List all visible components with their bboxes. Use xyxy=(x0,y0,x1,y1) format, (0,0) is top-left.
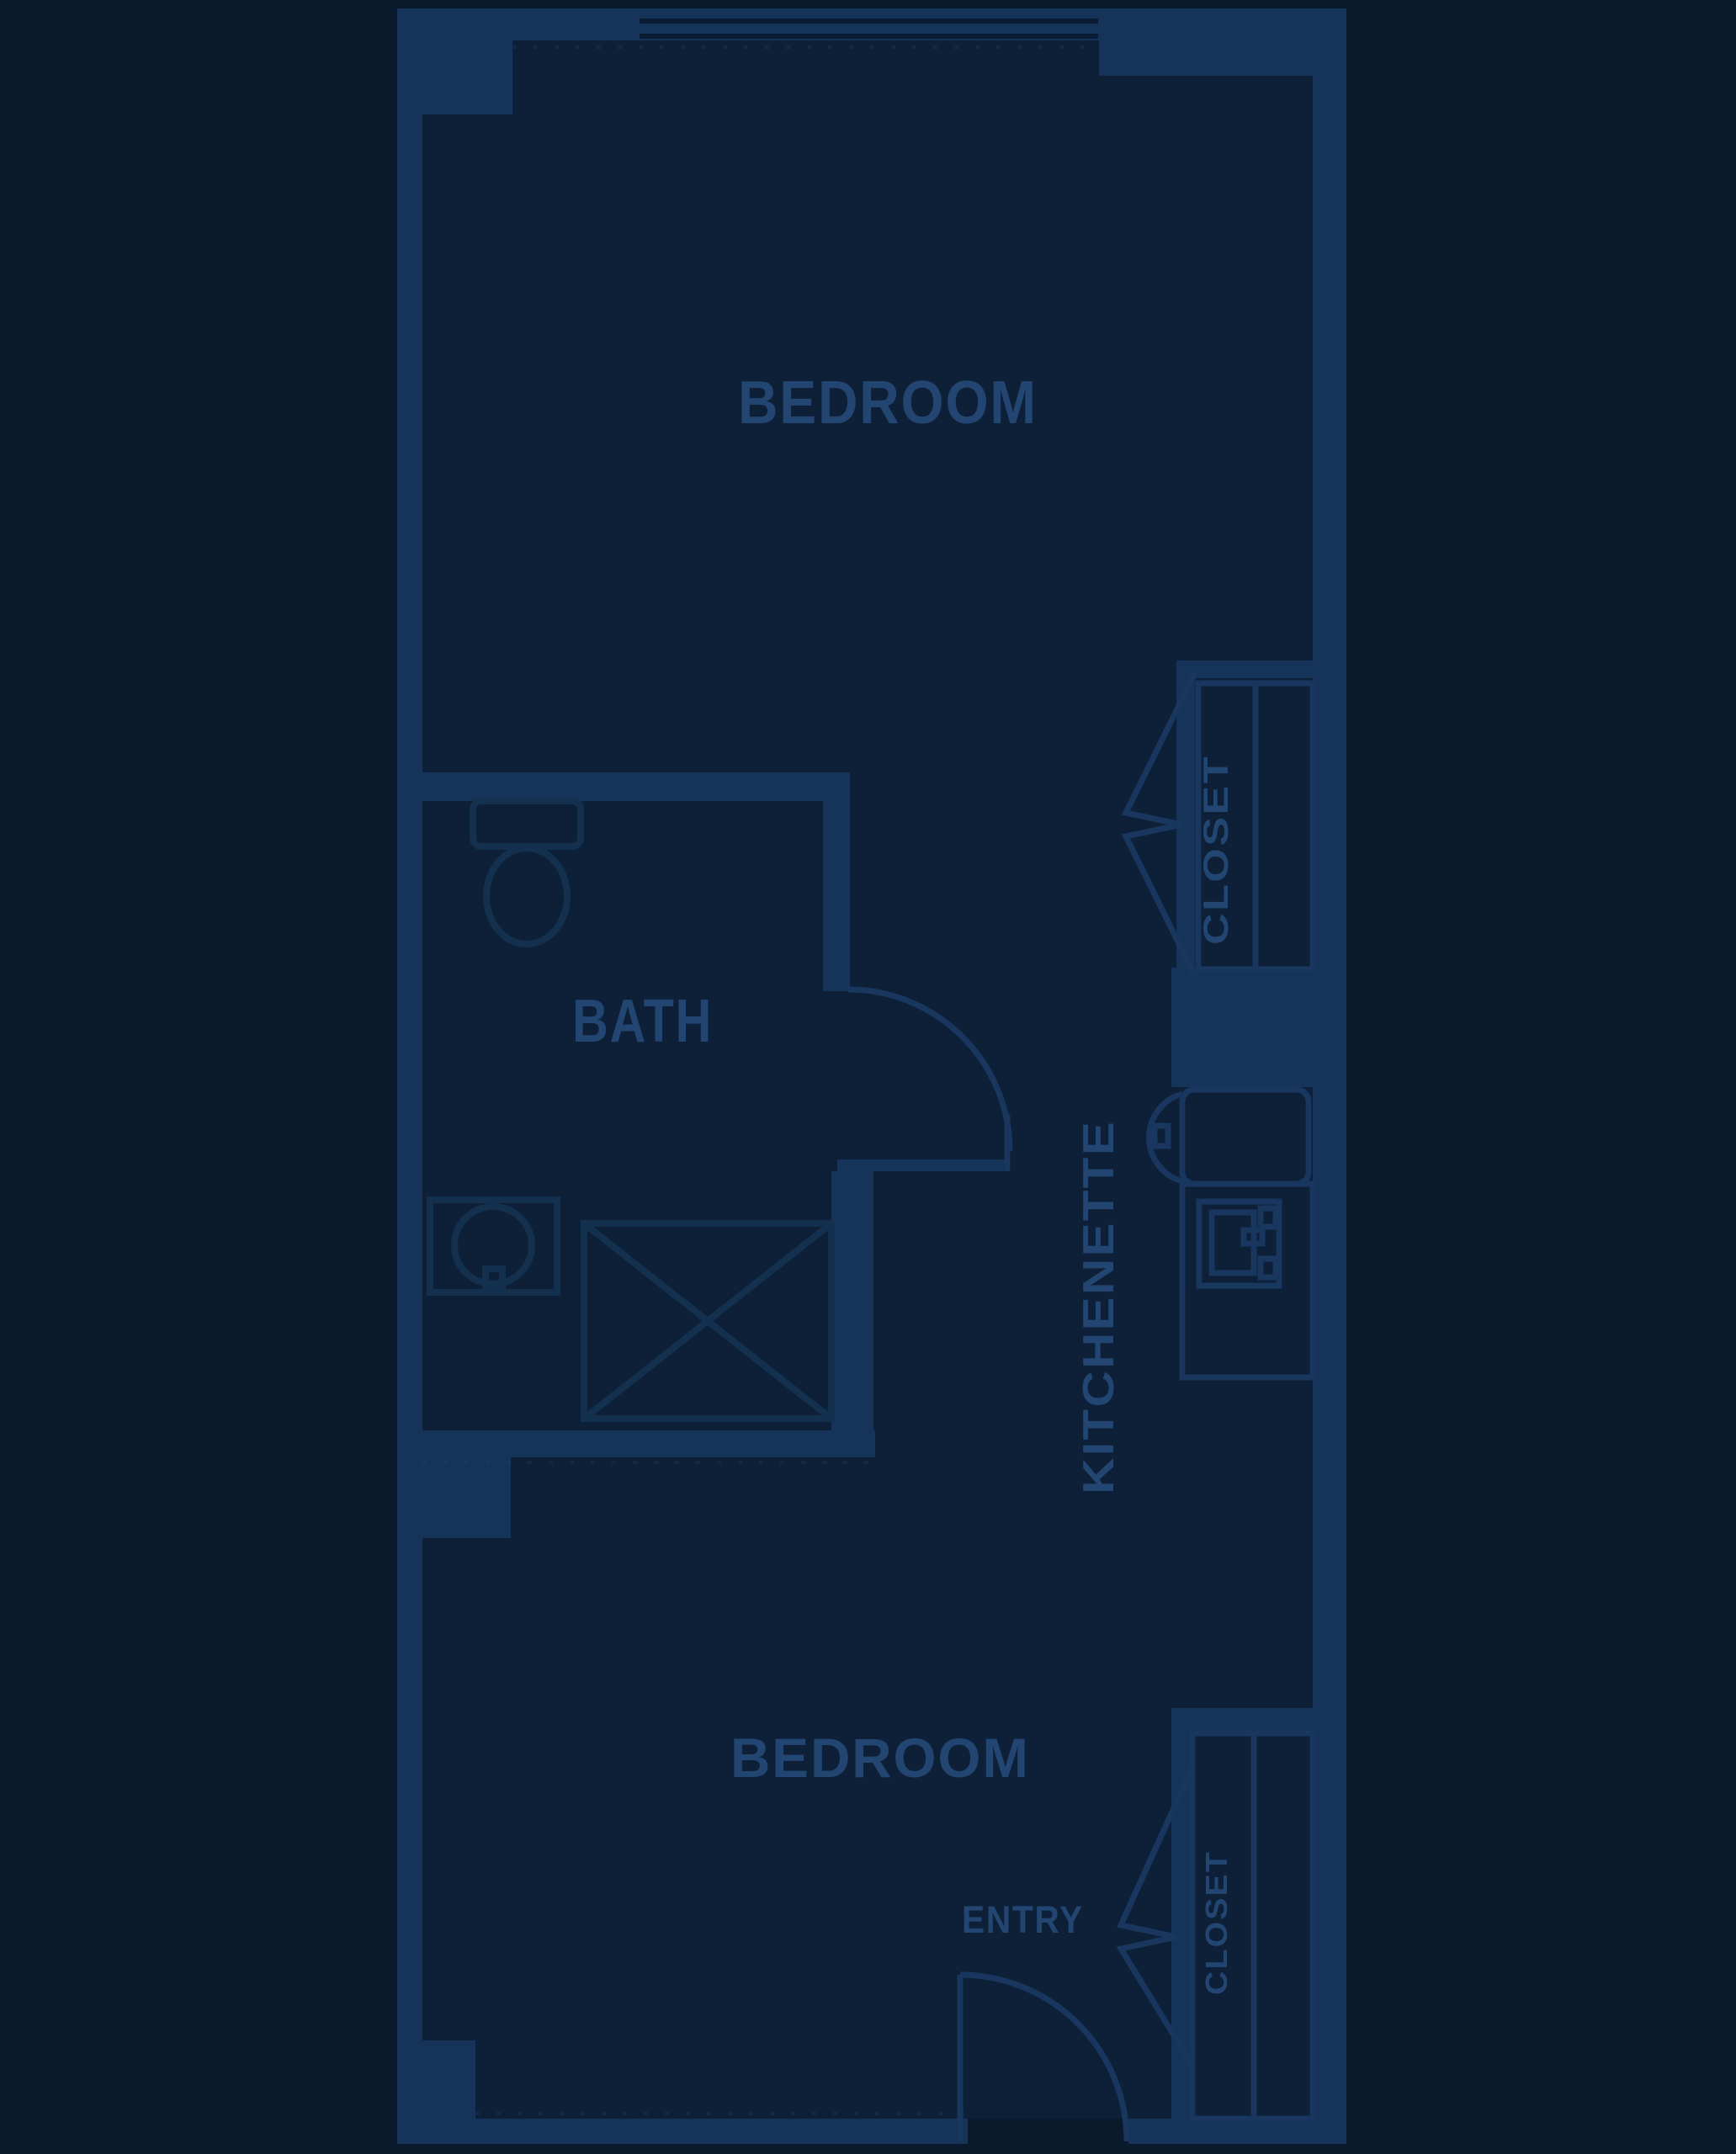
label-kitchenette: KITCHENETTE xyxy=(1075,1120,1123,1494)
label-entry: ENTRY xyxy=(962,1898,1084,1941)
wall-corridor-west xyxy=(831,1171,873,1430)
wall-corner-top-right xyxy=(1099,8,1346,76)
label-bath: BATH xyxy=(572,988,713,1055)
wall-closet-lower-top xyxy=(1171,1708,1313,1733)
label-bedroom-bottom: BEDROOM xyxy=(730,1727,1030,1789)
wall-bath-door-south xyxy=(837,1159,1010,1171)
kitchen-cabinet-block xyxy=(1171,968,1313,1087)
label-closet-lower: CLOSET xyxy=(1199,1850,1234,1995)
wall-bedroom-bath xyxy=(397,772,850,801)
wall-left xyxy=(397,8,422,2144)
wall-closet-upper-top xyxy=(1176,661,1346,678)
wall-right xyxy=(1313,8,1346,2144)
wall-bath-east xyxy=(823,801,850,991)
label-closet-upper: CLOSET xyxy=(1196,755,1235,945)
wall-bottom-left-span xyxy=(397,2119,968,2144)
label-bedroom-top: BEDROOM xyxy=(738,369,1038,437)
wall-corner-bedroom2 xyxy=(397,1430,511,1538)
wall-bottom-right-span xyxy=(1128,2119,1346,2144)
floor-plan: BEDROOM BATH CLOSET KITCHENETTE BEDROOM … xyxy=(0,0,1736,2154)
